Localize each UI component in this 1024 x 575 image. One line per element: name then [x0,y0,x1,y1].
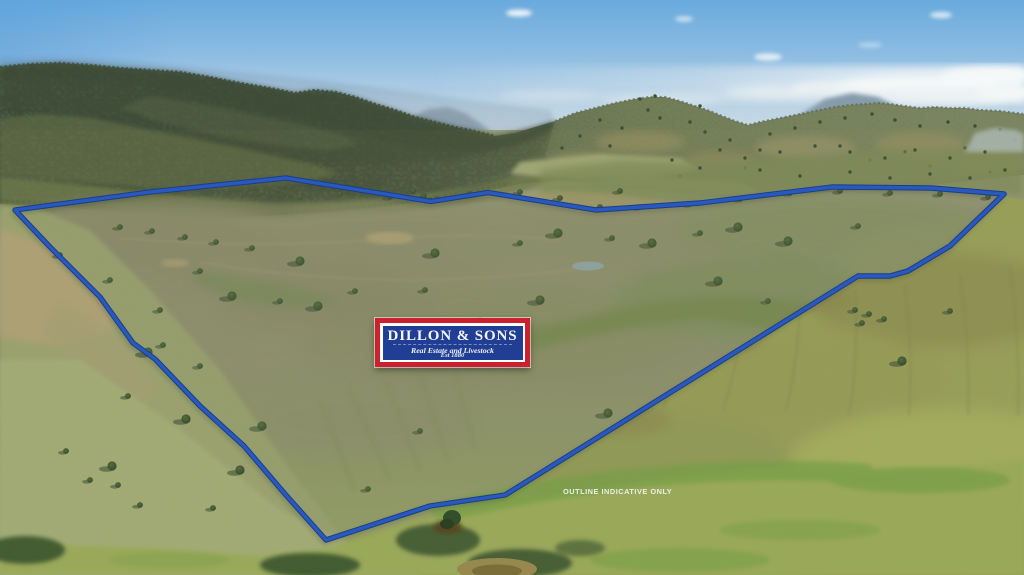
svg-text:OUTLINE INDICATIVE ONLY: OUTLINE INDICATIVE ONLY [563,487,672,496]
